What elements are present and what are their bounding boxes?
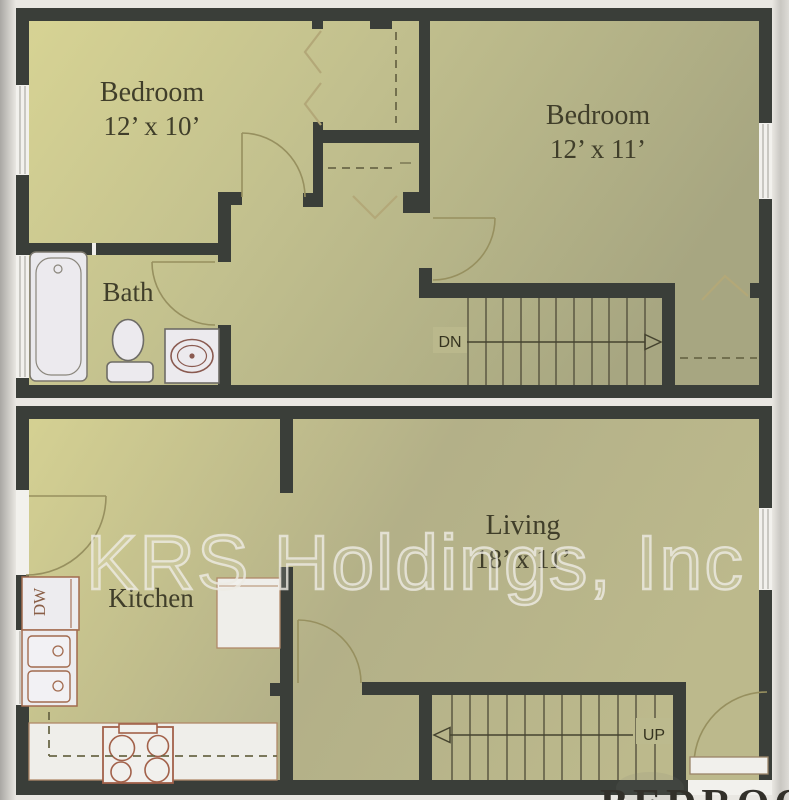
bottom-caption-fragment: BEDROO [600,782,789,800]
stove-icon [103,724,173,783]
room-label-bath: Bath [103,277,154,307]
floor-plan-drawing: DN Bedroom 12’ x 10’ Bedroom 12’ x [0,0,789,800]
stairs-up-label: UP [643,727,665,744]
window-bath [16,255,29,378]
room-dims-bedroom2: 12’ x 11’ [550,134,646,164]
upper-floor-plan: DN Bedroom 12’ x 10’ Bedroom 12’ x [16,8,772,398]
room-label-bedroom1: Bedroom [100,77,204,108]
room-label-bedroom2: Bedroom [546,100,650,131]
window-bedroom2 [759,123,772,199]
dishwasher-icon: DW [22,577,79,630]
page-right-edge [772,0,789,800]
dishwasher-label: DW [30,587,49,616]
page-left-edge [0,0,16,800]
room-dims-bedroom1: 12’ x 10’ [104,111,201,141]
window-bedroom1 [16,85,29,175]
entry-door-opening [16,490,29,575]
stairs-dn-label: DN [438,334,461,351]
floor-plan-page: DN Bedroom 12’ x 10’ Bedroom 12’ x [0,0,789,800]
watermark-text: KRS Holdings, Inc [86,520,745,606]
front-door-leaf [690,757,768,774]
kitchen-sink-icon [22,630,77,706]
bath-sink-icon [165,329,219,383]
bathtub-icon [30,252,87,381]
window-living [759,508,772,590]
wall-jamb-line [92,243,96,255]
